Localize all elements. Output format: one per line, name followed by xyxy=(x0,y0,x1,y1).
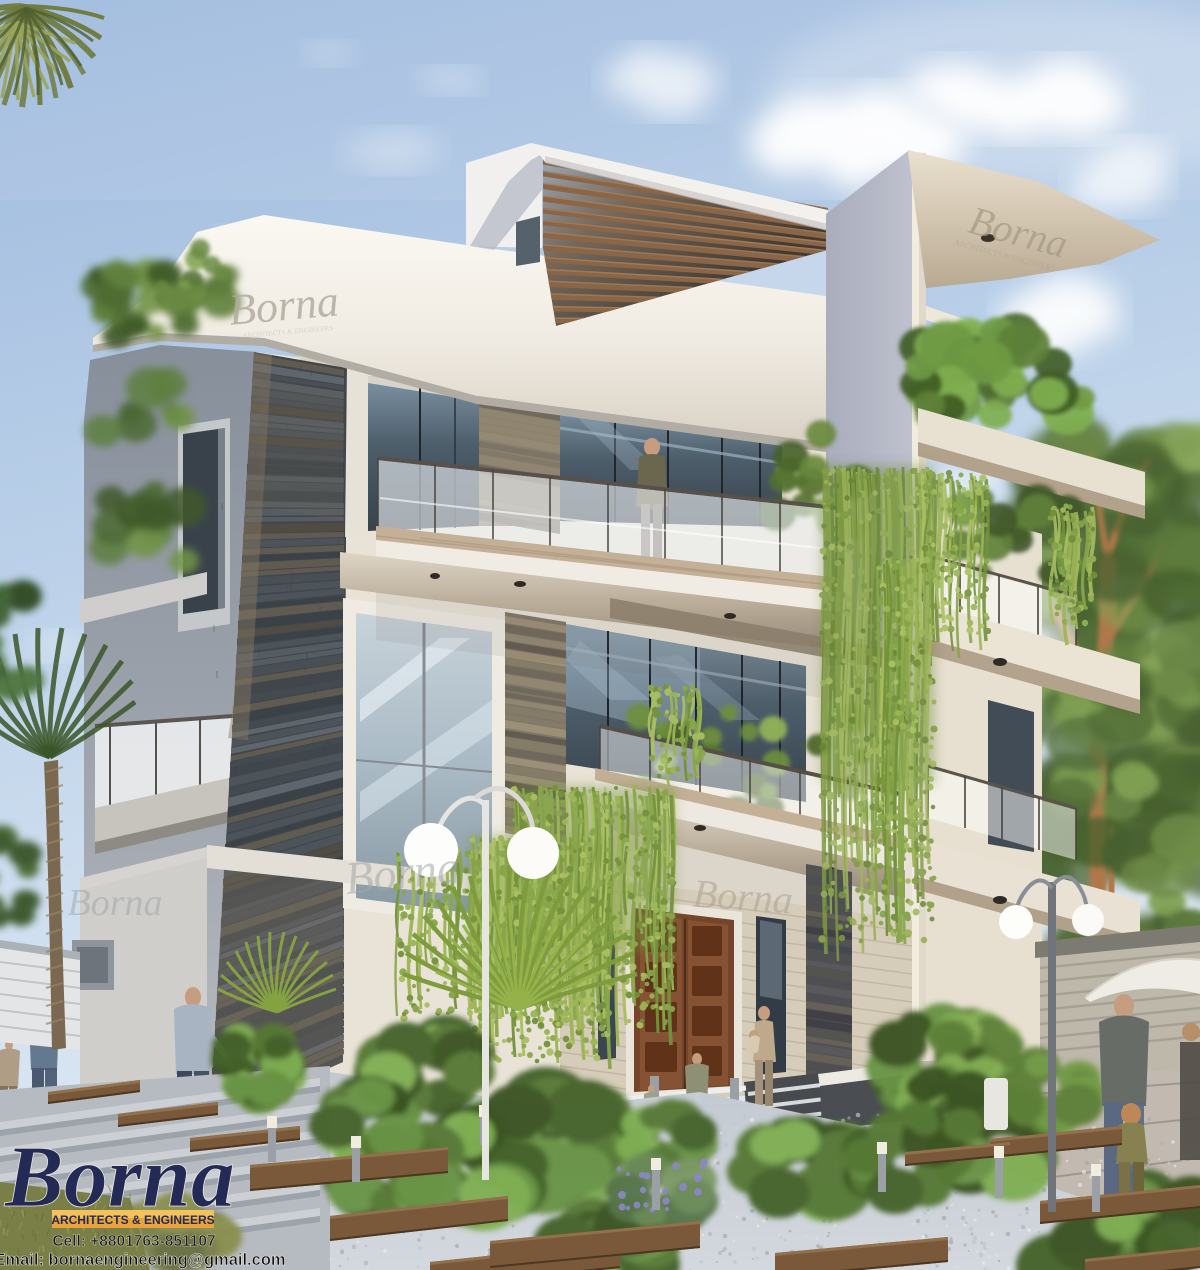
svg-text:Borna: Borna xyxy=(691,871,794,923)
svg-text:Email: bornaengineering@gmail.: Email: bornaengineering@gmail.com xyxy=(0,1251,286,1269)
svg-text:ARCHITECTS & ENGINEERS: ARCHITECTS & ENGINEERS xyxy=(51,1213,214,1227)
svg-text:Cell: +8801763-851107: Cell: +8801763-851107 xyxy=(52,1233,215,1250)
svg-text:Borna: Borna xyxy=(68,882,163,924)
